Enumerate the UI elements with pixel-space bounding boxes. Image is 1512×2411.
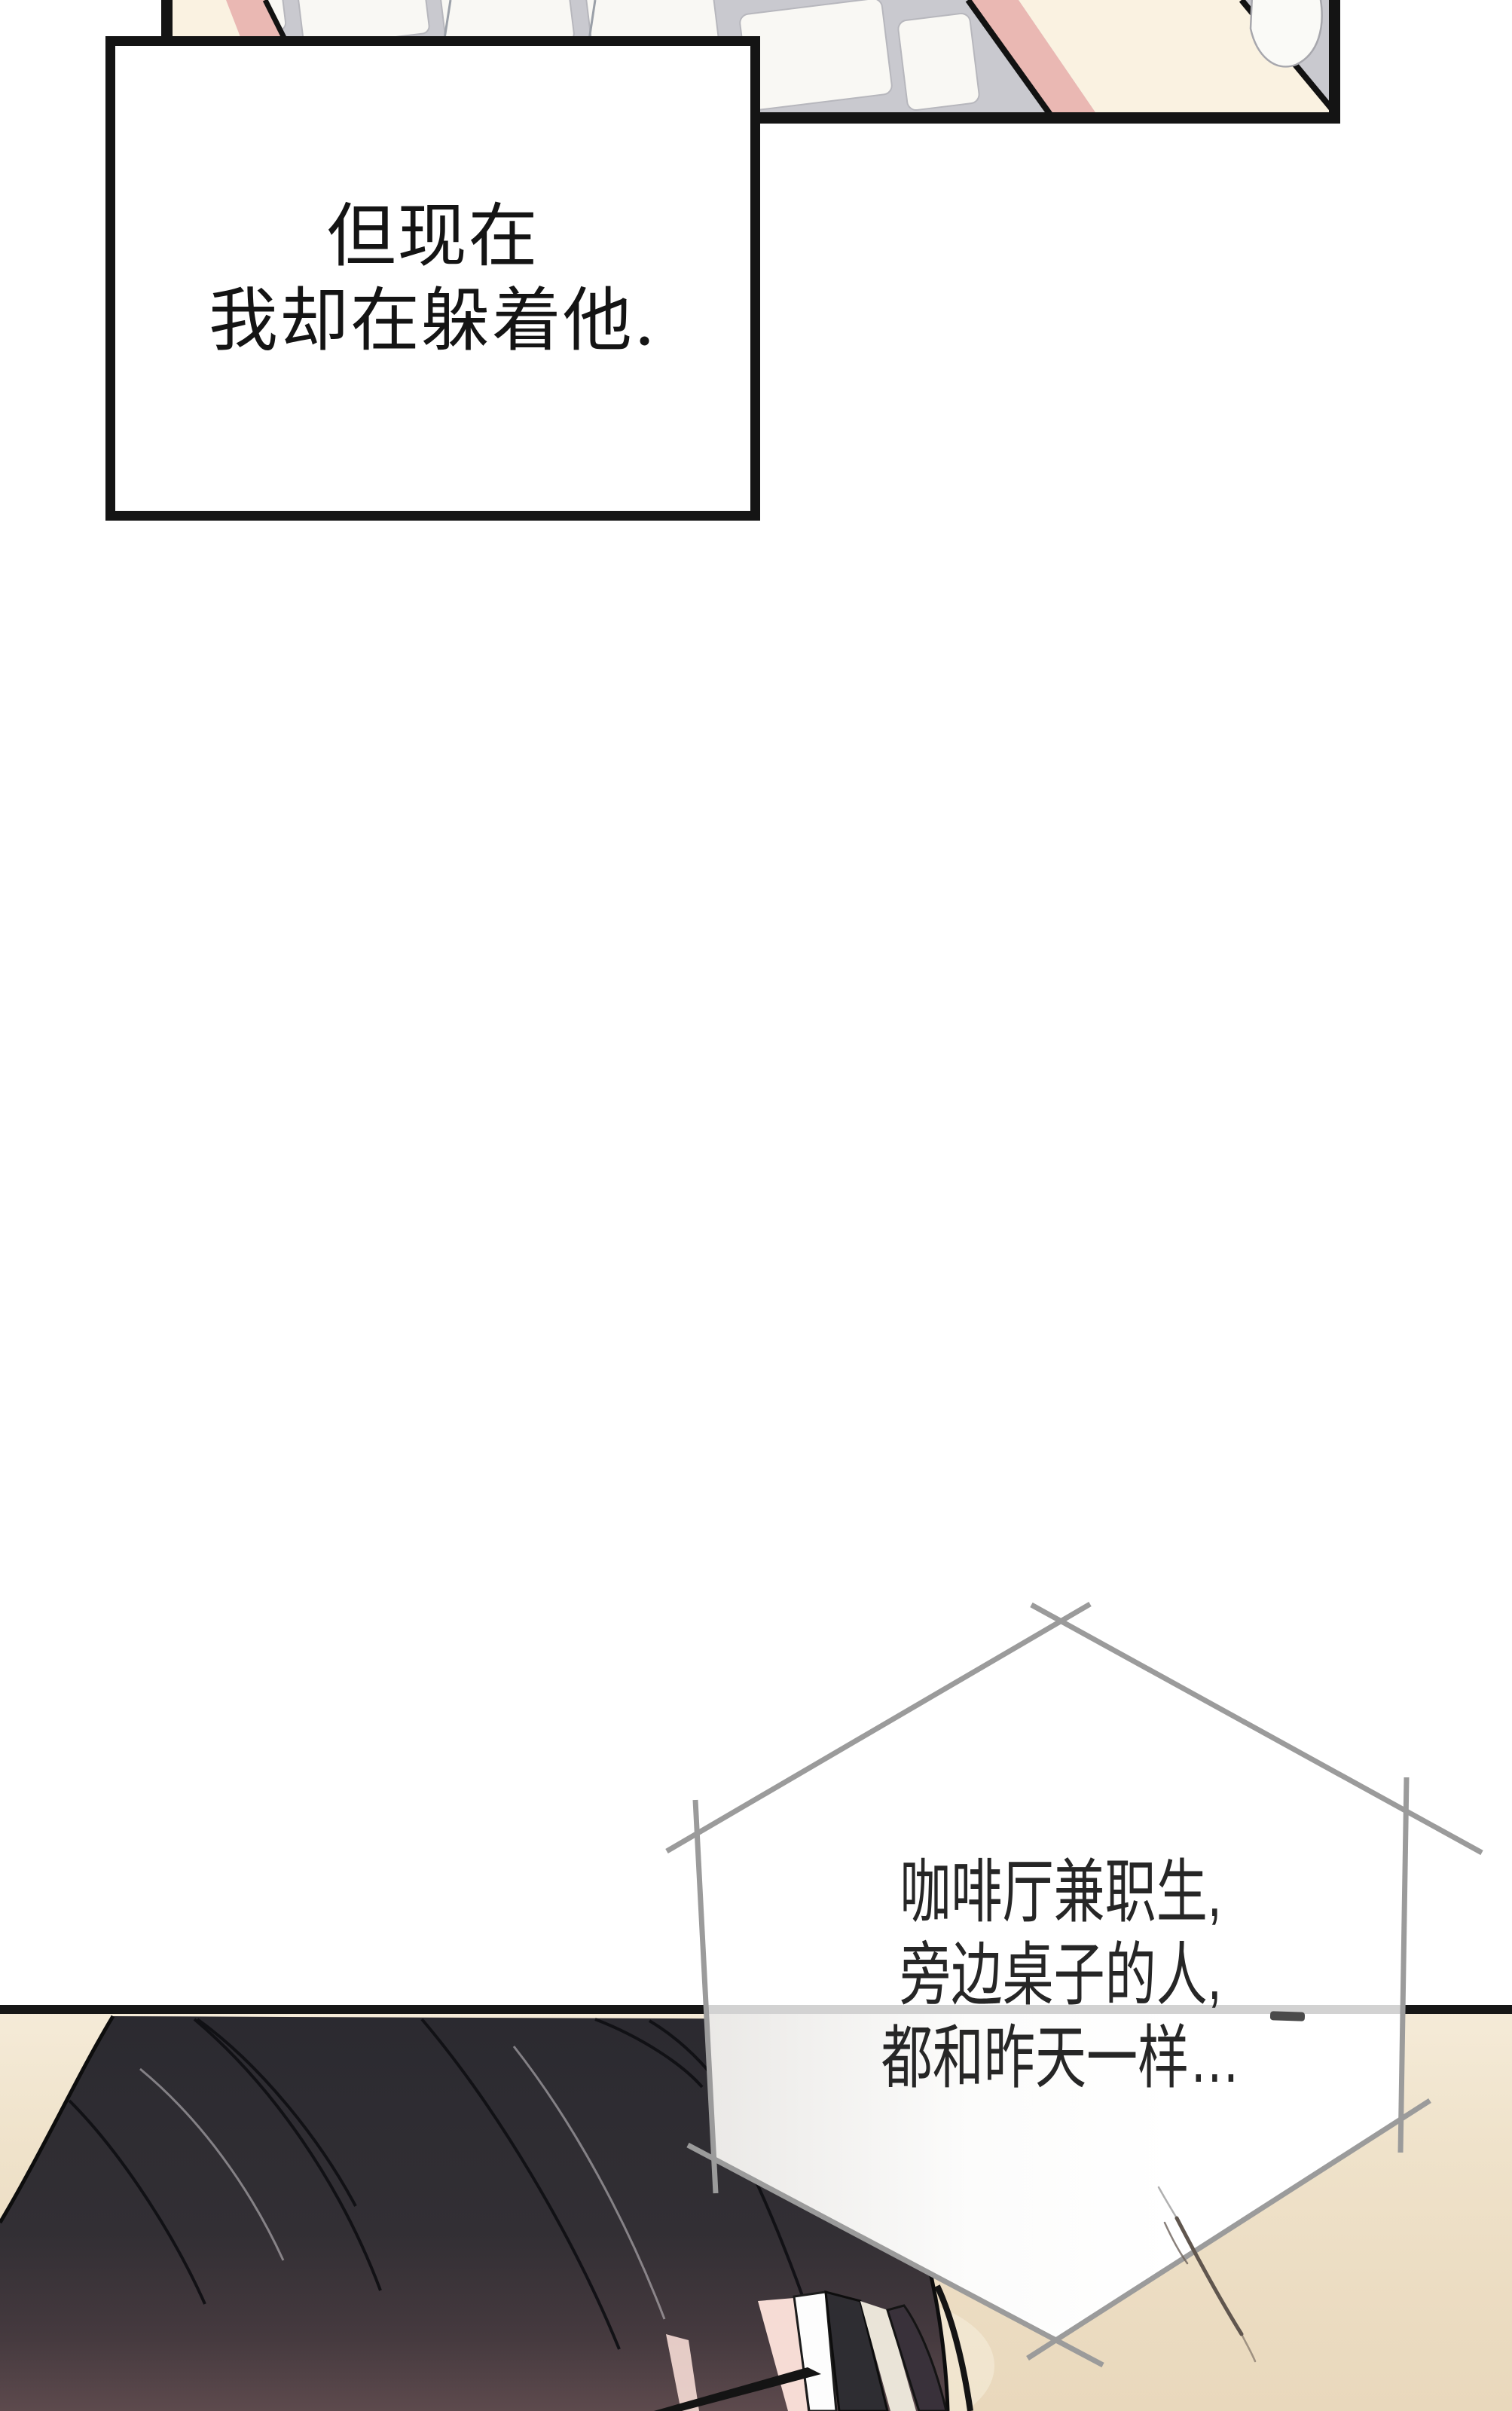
narration-line-1: 但现在 (326, 194, 539, 279)
speech-bubble-text: 咖啡厅兼职生, 旁边桌子的人, 都和昨天一样… (845, 1851, 1277, 2100)
bubble-line-1: 咖啡厅兼职生, (845, 1851, 1277, 1934)
bubble-line-2: 旁边桌子的人, (845, 1934, 1277, 2017)
bottom-panel-artwork (0, 1604, 1512, 2411)
narration-box: 但现在 我却在躲着他. (105, 36, 760, 521)
narration-line-2: 我却在躲着他. (209, 279, 657, 363)
comic-page: 但现在 我却在躲着他. 咖啡厅兼职生, 旁边桌子的人, 都和昨天一样… (0, 0, 1512, 2411)
bubble-line-3: 都和昨天一样… (845, 2017, 1277, 2100)
